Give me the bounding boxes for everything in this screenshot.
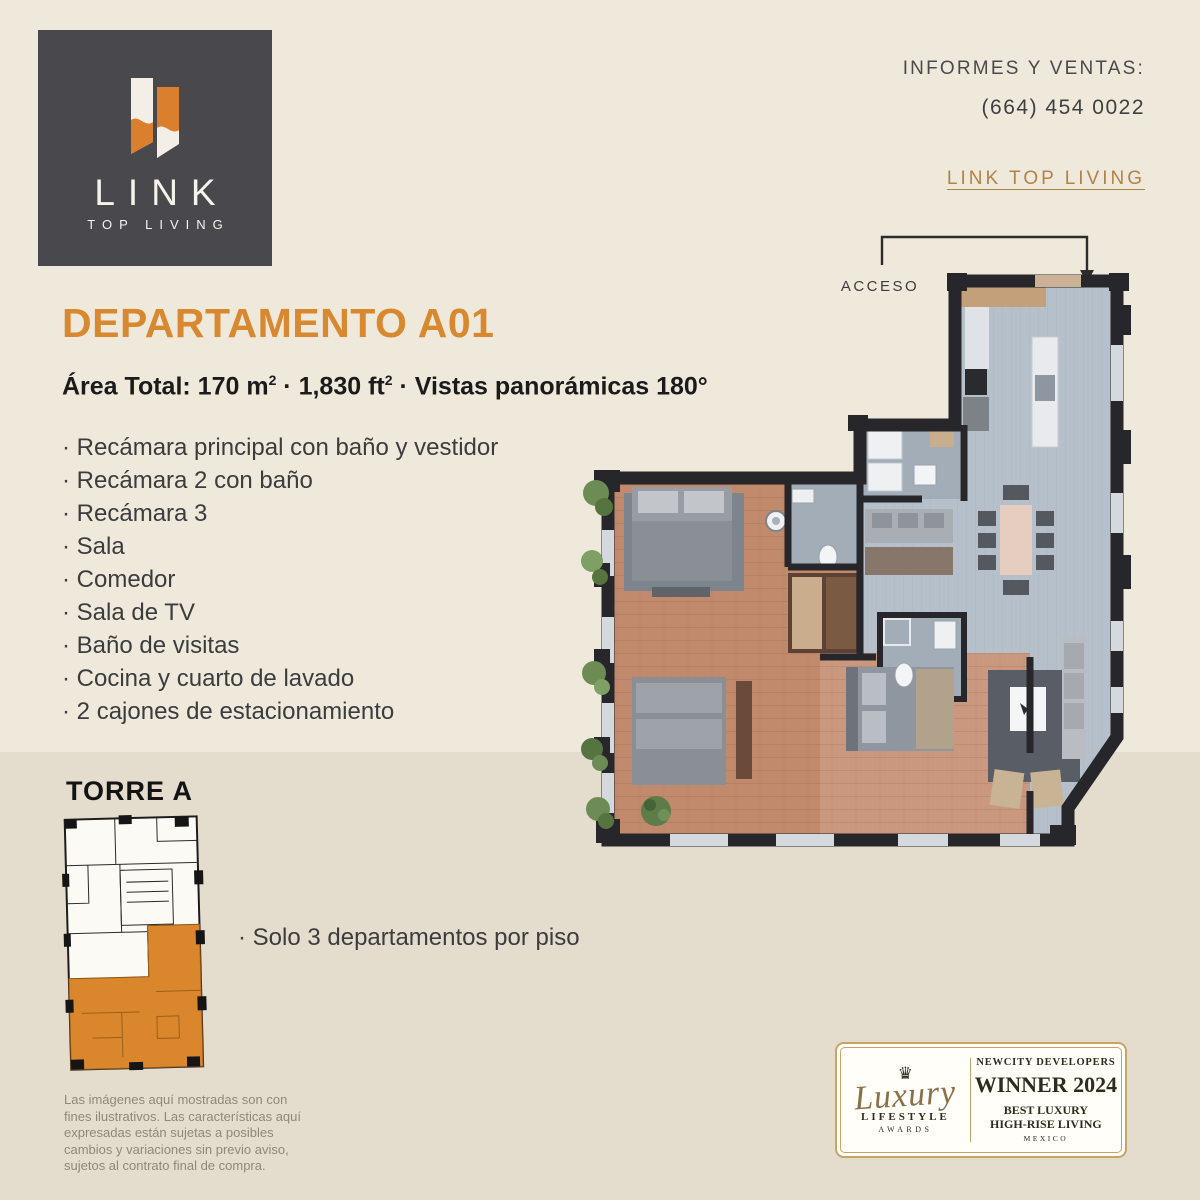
tv-rug	[865, 547, 953, 575]
dining-table	[1000, 505, 1032, 575]
award-country: MEXICO	[1024, 1134, 1069, 1143]
award-winner: WINNER 2024	[975, 1072, 1117, 1098]
feature-item: Sala de TV	[62, 596, 498, 629]
feature-item: Sala	[62, 530, 498, 563]
area-ft2-sup: 2	[385, 372, 393, 388]
feature-item: Recámara 2 con baño	[62, 464, 498, 497]
media-console	[736, 681, 752, 779]
acceso-label: ACCESO	[841, 278, 919, 295]
oven-stack	[965, 369, 987, 395]
floor-plan: ACCESO	[580, 225, 1145, 850]
acceso-arrow	[882, 237, 1087, 271]
bedroom2-headboard	[846, 667, 858, 751]
lounge-chair	[990, 769, 1025, 809]
contact-block: INFORMES Y VENTAS: (664) 454 0022 LINK T…	[903, 58, 1145, 190]
lounge-chair	[1030, 770, 1064, 809]
contact-phone: (664) 454 0022	[903, 96, 1145, 120]
award-category-line1: BEST LUXURY	[1004, 1103, 1088, 1117]
kitchen-cabinet	[958, 287, 1046, 307]
brand-website-link[interactable]: LINK TOP LIVING	[947, 168, 1145, 190]
brand-logo-card: LINK TOP LIVING	[38, 30, 272, 266]
feature-item: Cocina y cuarto de lavado	[62, 662, 498, 695]
award-right-panel: NEWCITY DEVELOPERS WINNER 2024 BEST LUXU…	[971, 1048, 1121, 1152]
tower-keyplan	[60, 812, 210, 1080]
logo-brand-text: LINK	[94, 172, 228, 214]
tower-note: Solo 3 departamentos por piso	[238, 924, 580, 952]
feature-item: Recámara 3	[62, 497, 498, 530]
area-m2: Área Total: 170 m	[62, 372, 269, 400]
flyer-page: LINK TOP LIVING INFORMES Y VENTAS: (664)…	[0, 0, 1200, 1200]
logo-tagline-text: TOP LIVING	[87, 217, 230, 232]
award-badge-inner: ♛ Luxury LIFESTYLE AWARDS NEWCITY DEVELO…	[840, 1047, 1122, 1153]
feature-item: Recámara principal con baño y vestidor	[62, 431, 498, 464]
kitchen-counter	[965, 307, 989, 369]
award-company: NEWCITY DEVELOPERS	[976, 1057, 1115, 1068]
entry-door	[1035, 275, 1081, 287]
link-logo-icon	[125, 78, 185, 168]
award-left-panel: ♛ Luxury LIFESTYLE AWARDS	[841, 1048, 970, 1152]
area-ft2: · 1,830 ft	[276, 372, 384, 400]
feature-item: Comedor	[62, 563, 498, 596]
sink	[792, 489, 814, 503]
feature-item: 2 cajones de estacionamiento	[62, 695, 498, 728]
feature-item: Baño de visitas	[62, 629, 498, 662]
features-list: Recámara principal con baño y vestidor R…	[62, 431, 498, 728]
contact-heading: INFORMES Y VENTAS:	[903, 58, 1145, 80]
tower-section-title: TORRE A	[66, 776, 193, 807]
award-script-text: Luxury	[853, 1077, 957, 1114]
legal-disclaimer: Las imágenes aquí mostradas son con fine…	[64, 1092, 306, 1175]
award-category-line2: HIGH-RISE LIVING	[990, 1117, 1102, 1131]
page-title: DEPARTAMENTO A01	[62, 300, 494, 347]
shower	[868, 431, 902, 459]
award-awards-text: AWARDS	[878, 1125, 932, 1134]
award-badge: ♛ Luxury LIFESTYLE AWARDS NEWCITY DEVELO…	[835, 1042, 1127, 1158]
toilet	[895, 663, 913, 687]
